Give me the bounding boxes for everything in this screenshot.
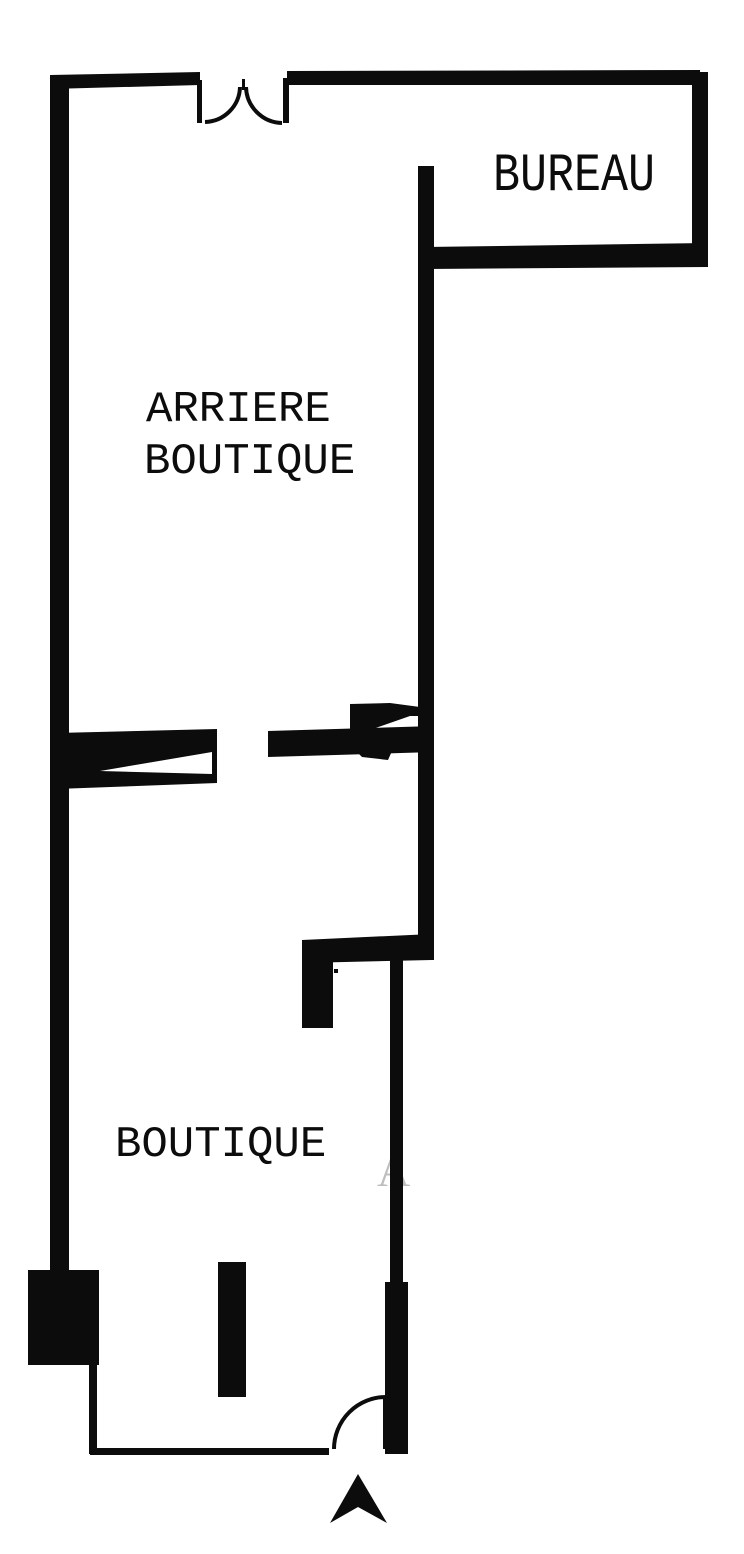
- svg-text:BOUTIQUE: BOUTIQUE: [115, 1120, 326, 1170]
- svg-text:ARRIERE: ARRIERE: [146, 385, 331, 435]
- svg-text:BOUTIQUE: BOUTIQUE: [144, 437, 355, 487]
- svg-text:BUREAU: BUREAU: [493, 146, 655, 207]
